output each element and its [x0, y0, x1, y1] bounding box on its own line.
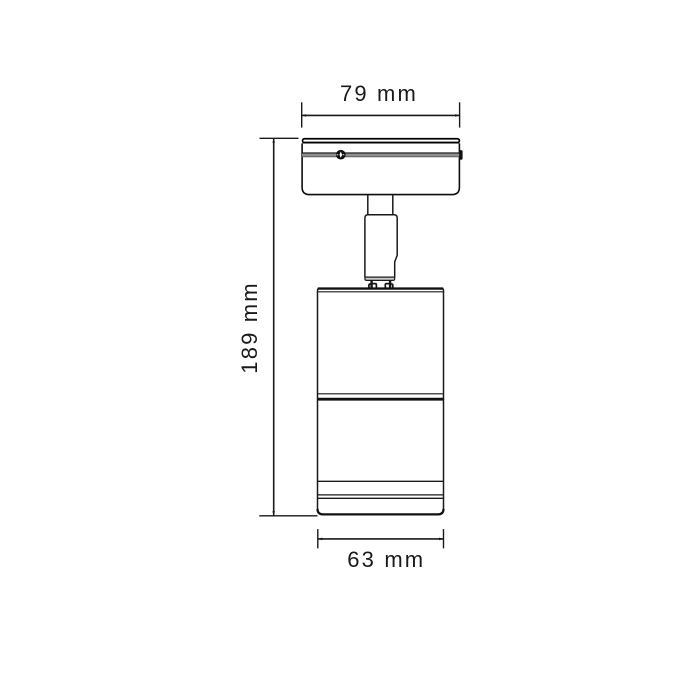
svg-text:79 mm: 79 mm — [340, 81, 418, 106]
svg-text:189 mm: 189 mm — [237, 281, 262, 373]
svg-text:63 mm: 63 mm — [347, 547, 425, 572]
